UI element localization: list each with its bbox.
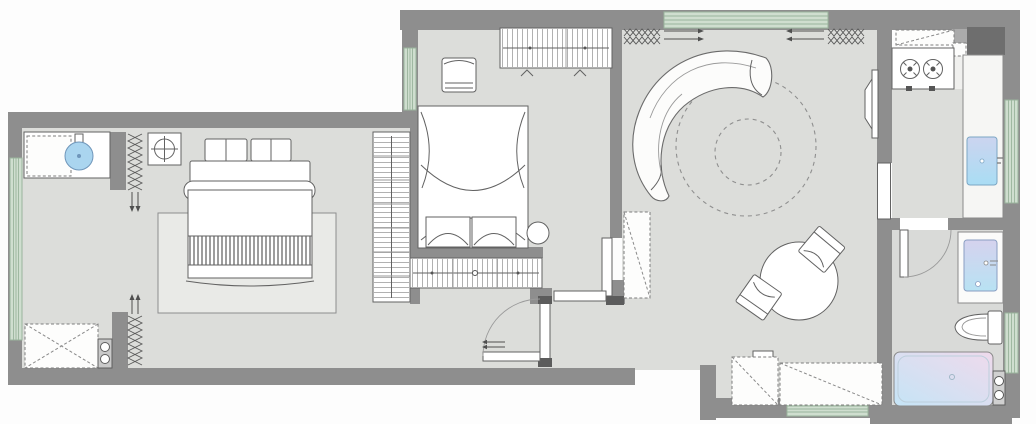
foot-bench-left [426, 217, 470, 247]
vanity [958, 232, 1003, 303]
wall-leftwing-north [8, 112, 410, 128]
bath-door-leaf [900, 230, 908, 277]
floor-plan-drawing [0, 0, 1036, 424]
sliding-door-leaf-bedroom2 [602, 238, 612, 296]
kitchen-door-leaf [878, 163, 891, 219]
track-block [538, 296, 552, 304]
cube-chair [442, 58, 476, 92]
wall-utility-stub [112, 312, 128, 370]
wall-nook-stub [110, 132, 126, 190]
sink-drain [980, 159, 984, 163]
window-west [10, 158, 22, 340]
bath-door-opening [900, 218, 948, 230]
upper-cabinet-dashed [896, 30, 954, 45]
door-track-block [606, 296, 624, 305]
knob-unit-bath [993, 371, 1005, 405]
round-side-stool [527, 222, 549, 244]
foot-bench-right [472, 217, 516, 247]
bathtub [894, 352, 993, 406]
washer-dashed [27, 136, 71, 176]
window-kitchen-east [1005, 100, 1018, 203]
wall-south-right [870, 405, 1012, 424]
sliding-partition-vertical [540, 303, 550, 359]
upper-cabinet-corner [953, 43, 966, 56]
floor-kitchen-walkway [892, 89, 963, 218]
floor-plan-canvas [0, 0, 1036, 424]
fan-drain-symbol [148, 133, 181, 165]
striped-blanket [188, 236, 312, 265]
sink-drain [77, 154, 81, 158]
window-living-north [664, 12, 828, 28]
canopy-bed [418, 106, 528, 248]
window-bath-east [1005, 313, 1018, 373]
sliding-partition-horizontal [554, 291, 606, 301]
basin-drain [976, 282, 981, 287]
stove-knob [929, 86, 935, 91]
stove-knob [906, 86, 912, 91]
double-bed [184, 139, 315, 286]
wall-bed-alcove [410, 247, 543, 258]
wardrobe-south [410, 258, 542, 288]
side-wardrobe [373, 132, 410, 302]
standing-mirror-dashed [624, 212, 650, 298]
entry-door-leaf [483, 352, 540, 361]
knob-unit-left [98, 339, 112, 368]
wall-kitchen-divider [877, 10, 892, 163]
window-bedroom2-west [404, 48, 416, 110]
wall-south-left [8, 368, 635, 385]
basin-faucet [984, 261, 988, 265]
two-burner-stove [892, 48, 954, 91]
flue-duct [967, 27, 1005, 55]
toilet-tank [988, 311, 1002, 344]
